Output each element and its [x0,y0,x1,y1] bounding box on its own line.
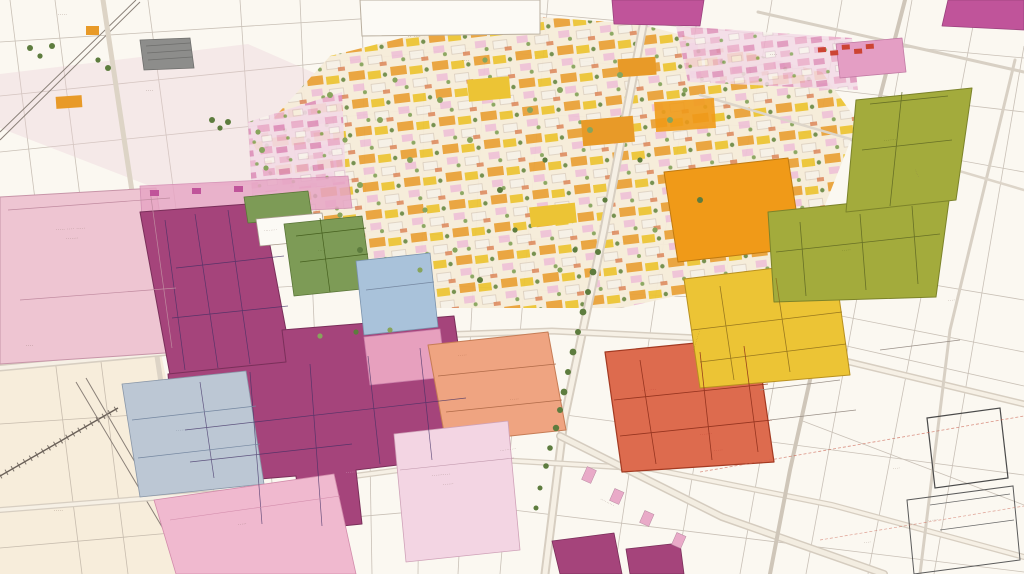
micro-label: ···· [318,248,325,253]
micro-label: ······ [443,481,455,487]
downtown-block-orange-2 [617,57,656,78]
micro-label: ···· [770,52,778,57]
orange-spot-1 [56,95,83,109]
micro-label: ····· [58,12,67,17]
map-canvas: ····· ···· ····· ······· ···· ····· ··· … [0,0,1024,574]
parcel-light-pink [394,421,520,562]
micro-label: ···· [864,539,872,545]
micro-label: ···· [26,343,34,348]
micro-label: ···· [893,465,901,471]
downtown-block-orange-3 [654,98,716,132]
micro-label: ····· [510,396,520,402]
micro-label: ····· [842,247,852,253]
parcel-magenta-top-2 [942,0,1024,30]
orange-spot-2 [86,26,99,35]
micro-label: ····· [346,469,356,475]
downtown-block-gold-1 [467,76,511,102]
micro-label: ···· [462,58,470,63]
micro-label: ······· [66,235,79,241]
parcel-blue-gray [122,371,264,497]
parcel-blue-light [356,253,438,335]
building-gray-roof [140,38,194,70]
micro-label: ···· [146,88,154,93]
parcel-magenta-top-1 [612,0,704,26]
micro-label: ····· [714,447,724,453]
micro-label: ····· [458,352,468,358]
micro-label: ····· [54,508,63,513]
building-white-block-top [360,0,540,36]
parcel-magenta-bottom-2 [626,543,684,574]
aerial-zoning-map: ····· ···· ····· ······· ···· ····· ··· … [0,0,1024,574]
micro-label: ···· [948,297,956,303]
micro-label: ·· ···· [408,34,421,39]
